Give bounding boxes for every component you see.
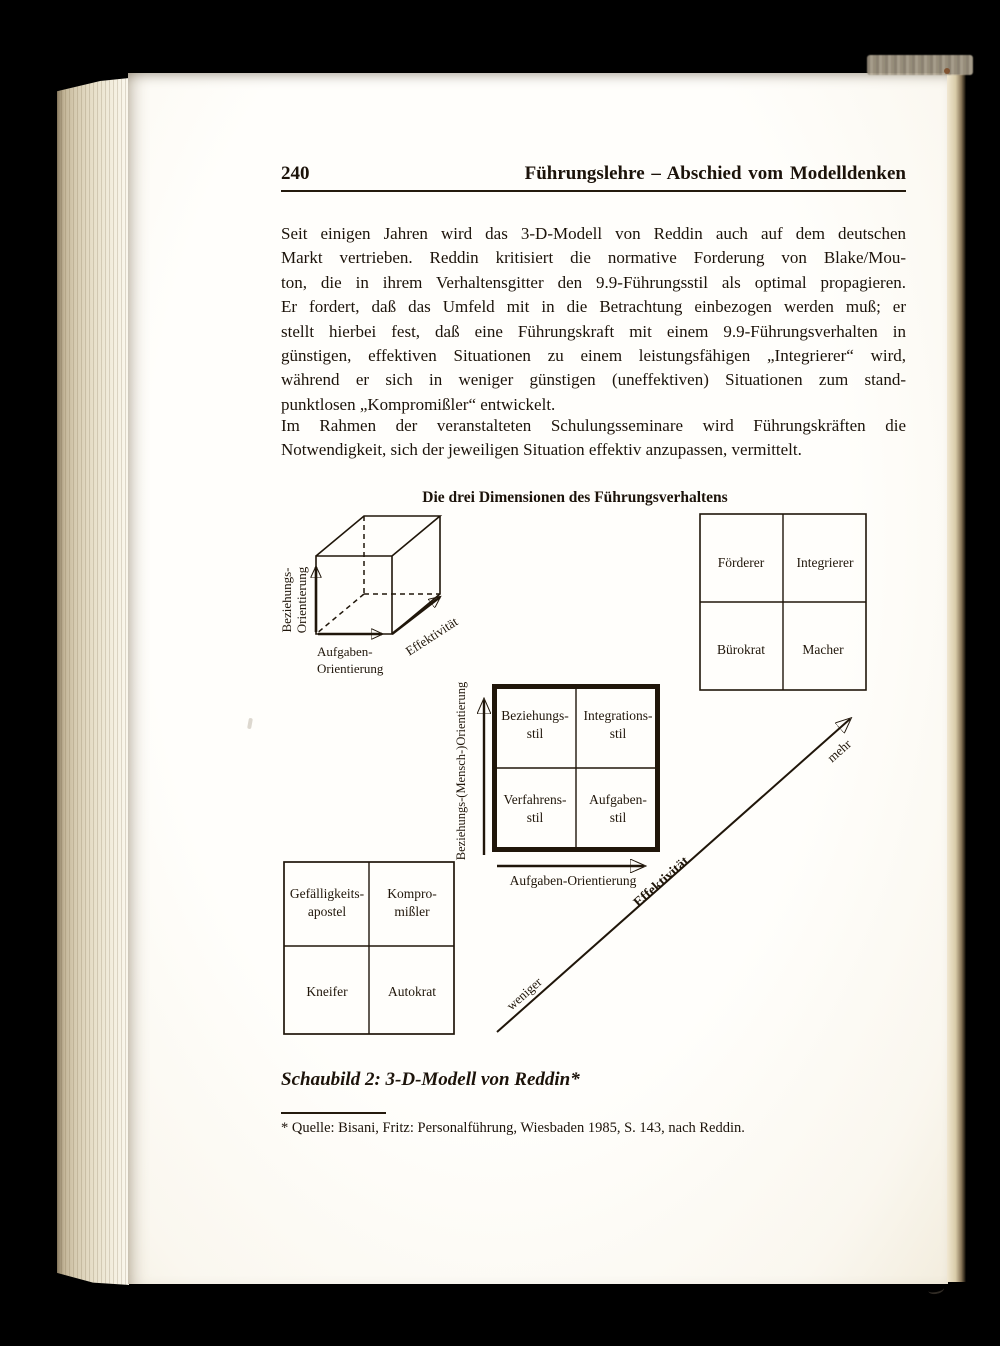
cube-axis-x-label-line2: Orientierung [317,661,384,676]
cube-axis-y-label-line2: Orientierung [294,566,309,633]
cell-integrierer: Integrierer [797,555,854,570]
scanned-book-page-photo: 240 Führungslehre – Abschied vom Modelld… [0,0,1000,1346]
paragraph-1: Seit einigen Jahren wird das 3-D-Modell … [281,222,906,417]
cell-verfahrensstil-line2: stil [527,810,544,825]
effective-styles-grid: Förderer Integrierer Bürokrat Macher [700,514,866,690]
next-page-edge-tab [867,55,973,75]
running-head-title: Führungslehre – Abschied vom Modelldenke… [281,163,906,185]
cell-aufgabenstil-line2: stil [610,810,627,825]
paragraph-2: Im Rahmen der veranstalteten Schulungsse… [281,414,906,463]
footnote-source: * Quelle: Bisani, Fritz: Personalführung… [281,1120,745,1137]
text-line: Markt vertrieben. Reddin kritisiert die … [281,246,906,270]
scan-dot-artifact [944,68,950,74]
basic-styles-grid: Beziehungs- stil Integrations- stil Verf… [454,681,658,888]
cell-foerderer: Förderer [718,555,765,570]
cell-aufgabenstil-line1: Aufgaben- [589,792,647,807]
cube-hidden-edges [316,516,440,634]
ineffective-styles-grid: Gefälligkeits- apostel Kompro- mißler Kn… [284,862,454,1034]
header-rule [281,190,906,192]
cube-axis-x-label-line1: Aufgaben- [317,644,373,659]
cell-macher: Macher [802,642,844,657]
cell-integrationsstil-line1: Integrations- [584,708,653,723]
cube-visible-edges [316,516,440,634]
text-line: günstigen, effektiven Situationen zu ein… [281,344,906,368]
text-line: während er sich in weniger günstigen (un… [281,368,906,392]
cell-beziehungsstil-line2: stil [527,726,544,741]
cube-3d: Beziehungs- Orientierung Aufgaben- Orien… [279,516,461,676]
cell-autokrat: Autokrat [388,984,436,999]
cube-axis-y-label-line1: Beziehungs- [279,568,294,633]
text-line: Seit einigen Jahren wird das 3-D-Modell … [281,222,906,246]
cell-kneifer: Kneifer [306,984,348,999]
reddin-3d-model-diagram: Beziehungs- Orientierung Aufgaben- Orien… [240,480,950,1060]
figure-caption: Schaubild 2: 3-D-Modell von Reddin* [281,1069,580,1091]
text-line: Er fordert, daß das Umfeld mit in die Be… [281,295,906,319]
cell-gefaelligkeitsapostel-line1: Gefälligkeits- [290,886,365,901]
footnote-rule [281,1112,386,1114]
cell-gefaelligkeitsapostel-line2: apostel [308,904,346,919]
scan-artifact-mark [927,1284,944,1296]
y-axis-label: Beziehungs-(Mensch-)Orientierung [454,681,468,860]
x-axis-label: Aufgaben-Orientierung [510,873,637,888]
cell-integrationsstil-line2: stil [610,726,627,741]
cell-kompromissler-line1: Kompro- [387,886,437,901]
cell-beziehungsstil-line1: Beziehungs- [501,708,569,723]
text-line: Notwendigkeit, sich der jeweiligen Situa… [281,438,906,462]
text-line: ton, die in ihrem Verhaltensgitter den 9… [281,271,906,295]
effectiveness-label: Effektivität [631,854,692,911]
effectiveness-high-label: mehr [824,736,854,765]
text-line: stellt hierbei fest, daß eine Führungskr… [281,320,906,344]
cell-verfahrensstil-line1: Verfahrens- [504,792,567,807]
cell-buerokrat: Bürokrat [717,642,765,657]
book-page-edges-left [57,78,129,1285]
text-line: Im Rahmen der veranstalteten Schulungsse… [281,414,906,438]
cell-kompromissler-line2: mißler [394,904,430,919]
